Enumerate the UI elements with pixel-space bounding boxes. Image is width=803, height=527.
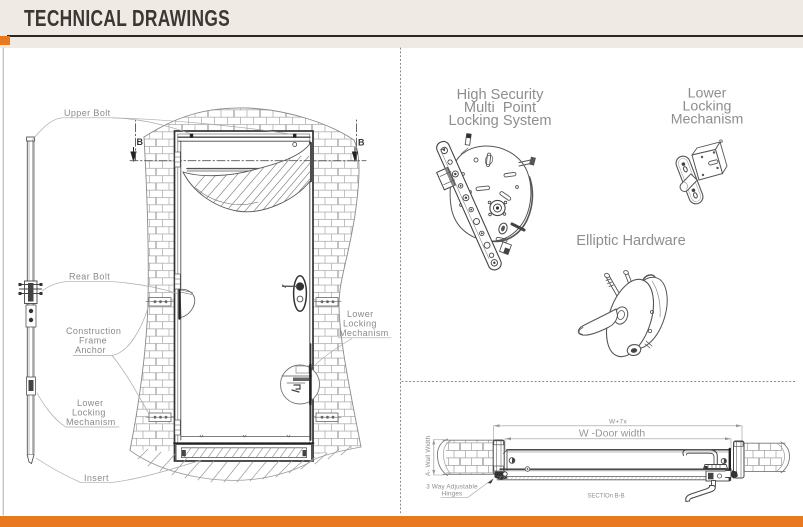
svg-text:Lower: Lower: [347, 309, 374, 319]
svg-text:Mechanism: Mechanism: [66, 417, 116, 427]
svg-text:SECTIOn B-B: SECTIOn B-B: [587, 494, 624, 500]
svg-text:Hinges: Hinges: [442, 491, 463, 498]
svg-text:3 Way Adjustable: 3 Way Adjustable: [426, 484, 478, 491]
svg-text:Lower: Lower: [77, 398, 104, 408]
svg-text:Anchor: Anchor: [75, 345, 106, 355]
svg-text:Upper Bolt: Upper Bolt: [64, 108, 111, 118]
svg-text:Frame: Frame: [79, 336, 107, 346]
svg-text:Mechanism: Mechanism: [339, 328, 389, 338]
svg-text:W -Door width: W -Door width: [579, 428, 646, 440]
svg-text:A- Wall Width: A- Wall Width: [425, 435, 432, 476]
svg-text:B: B: [358, 138, 365, 148]
svg-text:Rear Bolt: Rear Bolt: [69, 272, 110, 282]
svg-text:Locking: Locking: [343, 319, 377, 329]
svg-text:Locking System: Locking System: [448, 113, 551, 129]
svg-text:Locking: Locking: [72, 408, 106, 418]
svg-text:Elliptic Hardware: Elliptic Hardware: [576, 233, 686, 249]
svg-text:W+7x: W+7x: [609, 419, 627, 426]
svg-text:B: B: [137, 137, 144, 147]
svg-text:Mechanism: Mechanism: [671, 112, 744, 128]
svg-text:Construction: Construction: [66, 326, 121, 336]
svg-text:Insert: Insert: [84, 473, 109, 483]
